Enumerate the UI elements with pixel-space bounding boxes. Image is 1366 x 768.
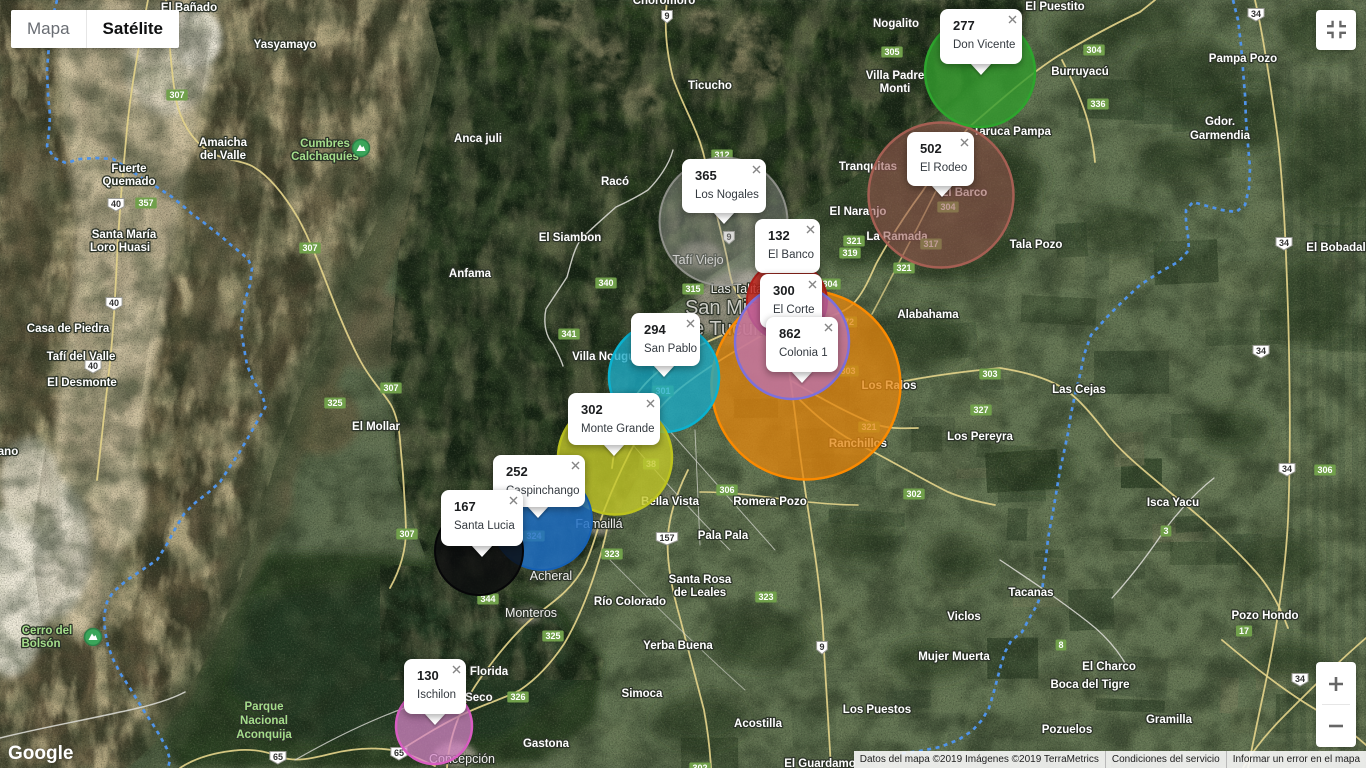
svg-text:Racó: Racó — [601, 176, 629, 188]
svg-text:Las Cejas: Las Cejas — [1052, 384, 1106, 396]
svg-text:Amaicha: Amaicha — [199, 137, 248, 149]
svg-text:Florida: Florida — [470, 666, 509, 678]
svg-text:321: 321 — [896, 263, 911, 273]
svg-text:Acostilla: Acostilla — [734, 718, 783, 730]
svg-text:8: 8 — [1058, 640, 1063, 650]
svg-text:319: 319 — [842, 248, 857, 258]
svg-text:Santa María: Santa María — [92, 229, 157, 241]
svg-text:del Valle: del Valle — [200, 150, 246, 162]
svg-text:9: 9 — [664, 11, 669, 21]
svg-text:Gdor.: Gdor. — [1205, 116, 1235, 128]
svg-text:Cerro del: Cerro del — [22, 625, 73, 637]
svg-text:Monteros: Monteros — [505, 606, 557, 620]
svg-text:302: 302 — [692, 763, 707, 768]
svg-text:34: 34 — [1251, 9, 1261, 19]
svg-text:Casa de Piedra: Casa de Piedra — [27, 323, 110, 335]
svg-text:Tafí del Valle: Tafí del Valle — [47, 351, 116, 363]
svg-text:Nacional: Nacional — [240, 715, 288, 727]
svg-text:307: 307 — [383, 383, 398, 393]
svg-text:El Charco: El Charco — [1082, 661, 1136, 673]
svg-text:315: 315 — [685, 284, 700, 294]
svg-text:Romera Pozo: Romera Pozo — [733, 496, 807, 508]
svg-text:Tacanas: Tacanas — [1008, 587, 1053, 599]
svg-text:303: 303 — [982, 369, 997, 379]
svg-text:Pozo Hondo: Pozo Hondo — [1231, 610, 1298, 622]
svg-text:Cumbres: Cumbres — [300, 138, 350, 150]
svg-text:El Mollar: El Mollar — [352, 421, 400, 433]
svg-text:Ticucho: Ticucho — [688, 80, 732, 92]
svg-text:de Leales: de Leales — [674, 587, 726, 599]
svg-text:323: 323 — [758, 592, 773, 602]
svg-text:Anca juli: Anca juli — [454, 133, 502, 145]
svg-text:Isca Yacu: Isca Yacu — [1147, 497, 1199, 509]
svg-text:Yasyamayo: Yasyamayo — [254, 39, 317, 51]
svg-text:302: 302 — [906, 489, 921, 499]
svg-text:325: 325 — [545, 631, 560, 641]
svg-text:Choromoro: Choromoro — [633, 0, 696, 7]
svg-text:Quemado: Quemado — [102, 176, 155, 188]
svg-text:Río Colorado: Río Colorado — [594, 596, 666, 608]
svg-text:Calchaquíes: Calchaquíes — [291, 151, 359, 163]
svg-text:327: 327 — [973, 405, 988, 415]
svg-text:307: 307 — [169, 90, 184, 100]
svg-text:Burruyacú: Burruyacú — [1051, 66, 1109, 78]
svg-text:65: 65 — [273, 752, 283, 762]
svg-text:9: 9 — [819, 642, 824, 652]
svg-text:305: 305 — [884, 47, 899, 57]
svg-text:307: 307 — [302, 243, 317, 253]
svg-text:321: 321 — [846, 236, 861, 246]
svg-text:307: 307 — [399, 529, 414, 539]
svg-text:17: 17 — [1239, 626, 1249, 636]
svg-text:El Bobadal: El Bobadal — [1306, 242, 1365, 254]
svg-text:306: 306 — [719, 485, 734, 495]
svg-text:326: 326 — [510, 692, 525, 702]
svg-text:Los Puestos: Los Puestos — [843, 704, 911, 716]
svg-text:Loro Huasi: Loro Huasi — [90, 242, 150, 254]
svg-text:Tala Pozo: Tala Pozo — [1010, 239, 1063, 251]
svg-text:3: 3 — [1163, 526, 1168, 536]
svg-text:Fuerte: Fuerte — [111, 163, 146, 175]
svg-text:Boca del Tigre: Boca del Tigre — [1050, 679, 1129, 691]
svg-text:Gastona: Gastona — [523, 738, 570, 750]
svg-text:El Guardamo: El Guardamo — [784, 758, 856, 768]
svg-text:Santa Rosa: Santa Rosa — [669, 574, 732, 586]
svg-text:341: 341 — [561, 329, 576, 339]
svg-text:357: 357 — [138, 198, 153, 208]
svg-text:Alabahama: Alabahama — [897, 309, 959, 321]
svg-text:40: 40 — [111, 199, 121, 209]
svg-text:ano: ano — [0, 446, 18, 458]
svg-text:336: 336 — [1090, 99, 1105, 109]
svg-text:Simoca: Simoca — [622, 688, 664, 700]
svg-text:Garmendia: Garmendia — [1190, 130, 1251, 142]
svg-text:40: 40 — [109, 298, 119, 308]
svg-text:El Desmonte: El Desmonte — [47, 377, 117, 389]
svg-text:Pozuelos: Pozuelos — [1042, 724, 1092, 736]
svg-text:El Siambon: El Siambon — [539, 232, 602, 244]
svg-text:40: 40 — [88, 361, 98, 371]
svg-text:Pala Pala: Pala Pala — [698, 530, 749, 542]
svg-text:Gramilla: Gramilla — [1146, 714, 1193, 726]
svg-text:323: 323 — [604, 549, 619, 559]
svg-text:Acheral: Acheral — [530, 569, 572, 583]
svg-text:Pampa Pozo: Pampa Pozo — [1209, 53, 1277, 65]
svg-text:Yerba Buena: Yerba Buena — [643, 640, 713, 652]
svg-text:65: 65 — [394, 748, 404, 758]
svg-text:Parque: Parque — [245, 701, 284, 713]
svg-text:325: 325 — [327, 398, 342, 408]
svg-text:34: 34 — [1295, 674, 1305, 684]
svg-text:306: 306 — [1317, 465, 1332, 475]
svg-text:Monti: Monti — [880, 83, 911, 95]
svg-text:Viclos: Viclos — [947, 611, 981, 623]
svg-text:304: 304 — [1086, 45, 1101, 55]
svg-text:34: 34 — [1279, 238, 1289, 248]
svg-text:340: 340 — [598, 278, 613, 288]
svg-text:34: 34 — [1282, 464, 1292, 474]
svg-text:Aconquija: Aconquija — [236, 729, 292, 741]
svg-text:157: 157 — [659, 533, 674, 543]
svg-text:Nogalito: Nogalito — [873, 18, 919, 30]
svg-text:Villa Padre: Villa Padre — [866, 70, 925, 82]
svg-text:Anfama: Anfama — [449, 268, 492, 280]
svg-text:Mujer Muerta: Mujer Muerta — [918, 651, 990, 663]
svg-text:El Puestito: El Puestito — [1025, 1, 1084, 13]
svg-text:Los Pereyra: Los Pereyra — [947, 431, 1013, 443]
svg-text:34: 34 — [1256, 346, 1266, 356]
svg-text:Bolsón: Bolsón — [22, 638, 61, 650]
